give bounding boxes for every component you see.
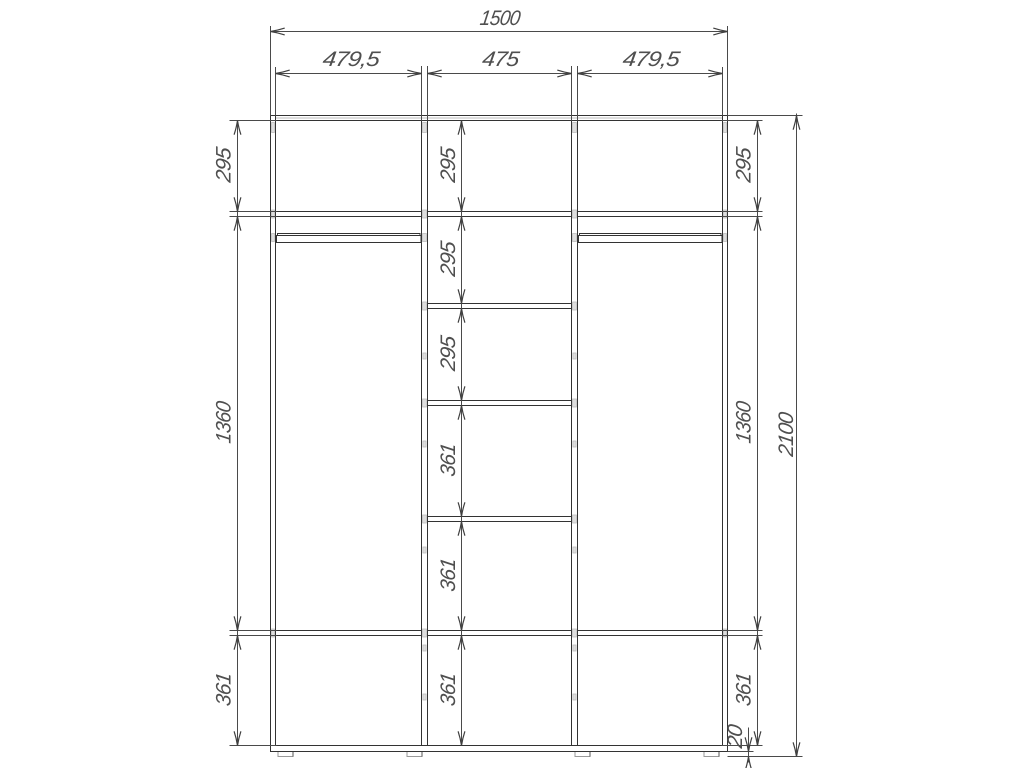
svg-text:361: 361 bbox=[437, 442, 460, 478]
svg-text:361: 361 bbox=[733, 672, 756, 708]
svg-text:295: 295 bbox=[733, 145, 756, 184]
svg-text:295: 295 bbox=[437, 239, 460, 278]
svg-text:2100: 2100 bbox=[775, 410, 798, 458]
svg-text:1360: 1360 bbox=[213, 399, 236, 444]
svg-text:295: 295 bbox=[437, 145, 460, 184]
svg-text:295: 295 bbox=[437, 334, 460, 373]
svg-text:475: 475 bbox=[481, 48, 521, 71]
svg-text:295: 295 bbox=[213, 145, 236, 184]
svg-text:1500: 1500 bbox=[479, 7, 523, 30]
svg-text:20: 20 bbox=[724, 723, 747, 751]
svg-text:361: 361 bbox=[437, 557, 460, 593]
svg-text:479,5: 479,5 bbox=[621, 48, 681, 71]
svg-text:1360: 1360 bbox=[733, 399, 756, 444]
svg-text:479,5: 479,5 bbox=[321, 48, 381, 71]
svg-text:361: 361 bbox=[437, 672, 460, 708]
svg-text:361: 361 bbox=[213, 672, 236, 708]
